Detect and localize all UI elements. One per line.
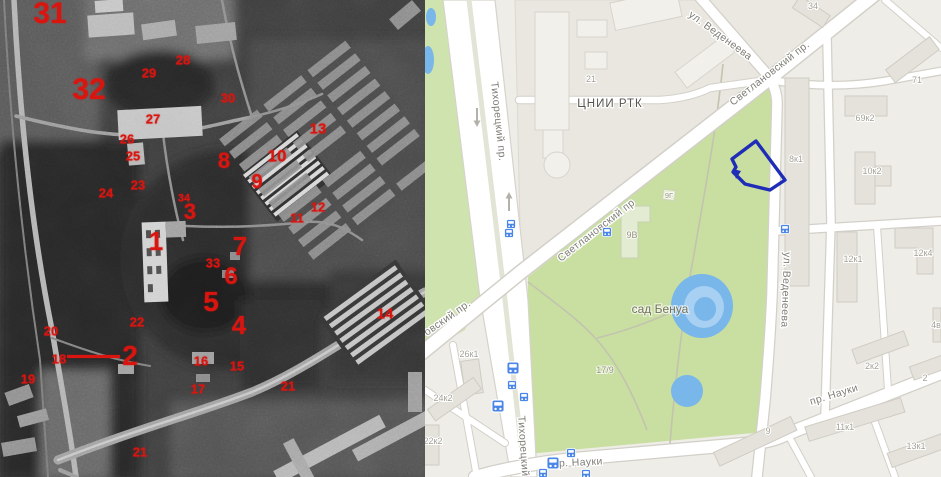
building-label: 24к2 bbox=[434, 393, 453, 403]
building-label: 9Г bbox=[665, 191, 673, 200]
photo-annotation: 21 bbox=[281, 380, 295, 393]
photo-annotation: 32 bbox=[72, 75, 105, 105]
photo-annotation: 15 bbox=[230, 360, 244, 373]
photo-annotation: 9 bbox=[251, 172, 262, 192]
photo-annotation: 2 bbox=[122, 342, 138, 370]
photo-annotation: 28 bbox=[176, 54, 190, 67]
photo-annotation: 1 bbox=[149, 228, 163, 254]
building-label: 26к1 bbox=[460, 349, 479, 359]
photo-annotation: 17 bbox=[191, 383, 205, 396]
bus-stop-icon[interactable] bbox=[508, 381, 517, 390]
building-label: 69к2 bbox=[856, 113, 875, 123]
building-label: 12к4 bbox=[914, 248, 933, 258]
photo-annotation: 29 bbox=[142, 67, 156, 80]
photo-annotation: 6 bbox=[224, 265, 237, 289]
building-label: 9 bbox=[765, 426, 770, 436]
building-label: 71 bbox=[912, 75, 922, 85]
photo-annotation: 3 bbox=[184, 201, 196, 223]
map-canvas[interactable]: Тихорецкий пр. Тихорецкий Светлановский … bbox=[425, 0, 941, 477]
label-institute[interactable]: ЦНИИ РТК bbox=[577, 98, 642, 110]
building-label: 22к2 bbox=[425, 436, 442, 446]
building-label: 8к1 bbox=[789, 154, 803, 164]
photo-annotation: 14 bbox=[377, 307, 394, 322]
bus-stop-icon[interactable] bbox=[781, 225, 790, 234]
building-label: 10к2 bbox=[863, 166, 882, 176]
bus-stop-icon[interactable] bbox=[507, 220, 516, 229]
screenshot-root: 31 32 30 29 28 27 26 25 24 23 13 10 9 8 … bbox=[0, 0, 941, 477]
bus-stop-icon[interactable] bbox=[567, 449, 576, 458]
photo-annotation: 25 bbox=[126, 150, 140, 163]
photo-annotation: 31 bbox=[33, 0, 66, 29]
building-label: 12к1 bbox=[844, 254, 863, 264]
aerial-photo bbox=[0, 0, 425, 477]
photo-annotation: 13 bbox=[310, 122, 327, 137]
photo-annotation: 11 bbox=[290, 212, 304, 225]
building-label: 17/9 bbox=[596, 365, 614, 375]
photo-annotation: 20 bbox=[44, 325, 58, 338]
photo-annotation: 16 bbox=[194, 355, 208, 368]
building-label: 21 bbox=[586, 74, 596, 84]
photo-annotation: 19 bbox=[21, 373, 35, 386]
bus-stop-icon[interactable] bbox=[582, 470, 591, 477]
photo-grain-fine bbox=[0, 0, 425, 477]
map-panel[interactable]: Тихорецкий пр. Тихорецкий Светлановский … bbox=[425, 0, 941, 477]
building-label: 2 bbox=[922, 373, 927, 383]
annotation-18-leader-line bbox=[67, 355, 120, 358]
photo-annotation: 23 bbox=[131, 179, 145, 192]
bus-stop-icon[interactable] bbox=[505, 229, 514, 238]
building-label: 2к2 bbox=[865, 361, 879, 371]
bus-stop-icon[interactable] bbox=[603, 228, 612, 237]
photo-annotation: 21 bbox=[133, 446, 147, 459]
trolleybus-stop-icon[interactable] bbox=[547, 457, 559, 469]
photo-annotation: 30 bbox=[221, 92, 235, 105]
photo-annotation: 8 bbox=[218, 150, 230, 172]
building-label: 4в bbox=[931, 320, 941, 330]
building-label: 13к1 bbox=[907, 441, 926, 451]
photo-annotation: 4 bbox=[232, 312, 246, 338]
tram-stop-icon[interactable] bbox=[507, 362, 519, 374]
photo-annotation: 24 bbox=[99, 187, 113, 200]
photo-annotation: 26 bbox=[120, 133, 134, 146]
building-label: 9В bbox=[626, 230, 637, 240]
bus-stop-icon[interactable] bbox=[520, 393, 529, 402]
pond bbox=[426, 8, 436, 26]
photo-annotation: 5 bbox=[203, 288, 219, 316]
photo-annotation: 7 bbox=[233, 233, 247, 259]
photo-annotation: 27 bbox=[146, 113, 160, 126]
photo-annotation: 18 bbox=[52, 353, 66, 366]
photo-annotation: 12 bbox=[311, 201, 325, 214]
trolleybus-stop-icon[interactable] bbox=[492, 400, 504, 412]
photo-annotation: 22 bbox=[130, 316, 144, 329]
label-park[interactable]: сад Бенуа bbox=[632, 302, 689, 316]
aerial-photo-panel: 31 32 30 29 28 27 26 25 24 23 13 10 9 8 … bbox=[0, 0, 425, 477]
photo-annotation: 10 bbox=[268, 148, 287, 165]
building-label: 34 bbox=[808, 1, 818, 11]
bus-stop-icon[interactable] bbox=[539, 469, 548, 477]
building-label: 11к1 bbox=[836, 422, 854, 432]
photo-annotation: 33 bbox=[206, 257, 220, 270]
